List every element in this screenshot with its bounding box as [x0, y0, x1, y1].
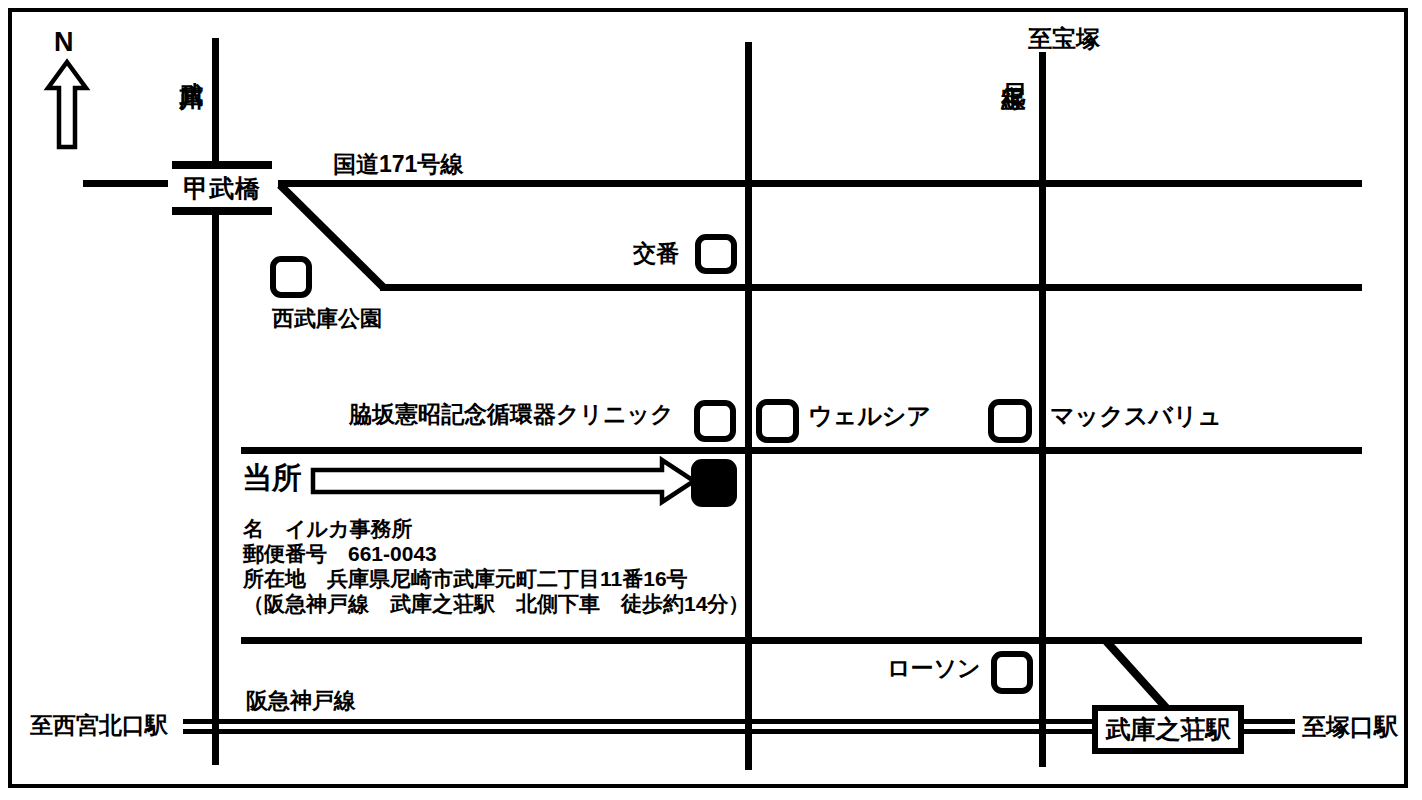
this-office-label: 当所 — [242, 461, 302, 494]
max-valu-label: マックスバリュ — [1050, 403, 1222, 429]
access-map: 甲武橋 武庫之荘駅 N 武庫川 至宝塚 尼宝線 国道171号線 交番 西武庫公園… — [0, 0, 1422, 800]
office-name-line: 名 イルカ事務所 — [243, 516, 749, 541]
central-vertical-road — [745, 42, 752, 770]
clinic-marker — [694, 400, 736, 442]
niho-line-road — [1039, 52, 1046, 767]
police-box-label: 交番 — [633, 241, 679, 266]
office-info-block: 名 イルカ事務所 郵便番号 661-0043 所在地 兵庫県尼崎市武庫元町二丁目… — [243, 516, 749, 616]
welcia-marker — [756, 399, 799, 443]
kobu-bridge-marker: 甲武橋 — [172, 161, 272, 215]
office-postal-line: 郵便番号 661-0043 — [243, 541, 749, 566]
to-tsukaguchi-label: 至塚口駅 — [1302, 714, 1398, 740]
route171-road — [278, 180, 1362, 187]
office-access-line: （阪急神戸線 武庫之荘駅 北側下車 徒歩約14分） — [243, 591, 749, 616]
mukonoso-station-marker: 武庫之荘駅 — [1092, 705, 1244, 754]
route171-label: 国道171号線 — [333, 152, 463, 177]
clinic-road — [241, 447, 1362, 454]
lawson-label: ローソン — [887, 656, 981, 681]
kobu-bridge-label: 甲武橋 — [183, 172, 261, 205]
office-address-line: 所在地 兵庫県尼崎市武庫元町二丁目11番16号 — [243, 566, 749, 591]
lawson-road — [241, 637, 1362, 644]
welcia-label: ウェルシア — [808, 403, 931, 429]
max-valu-marker — [988, 399, 1032, 443]
nishimuko-park-label: 西武庫公園 — [272, 307, 382, 331]
second-road — [380, 284, 1362, 291]
north-label: N — [54, 28, 74, 58]
police-box-marker — [695, 234, 737, 274]
niho-line-label: 尼宝線 — [1000, 64, 1026, 70]
mukonoso-station-label: 武庫之荘駅 — [1106, 713, 1231, 746]
route171-west-segment — [83, 180, 168, 187]
clinic-label: 脇坂憲昭記念循環器クリニック — [349, 402, 674, 427]
office-location-marker — [691, 459, 737, 507]
nishimuko-park-marker — [270, 256, 312, 298]
mukogawa-river-line — [212, 38, 219, 765]
to-takarazuka-label: 至宝塚 — [1028, 26, 1100, 52]
to-nishinomiya-kitaguchi-label: 至西宮北口駅 — [30, 713, 168, 738]
lawson-marker — [991, 651, 1033, 694]
mukogawa-river-label: 武庫川 — [178, 62, 204, 68]
hankyu-kobe-line-label: 阪急神戸線 — [246, 689, 356, 713]
